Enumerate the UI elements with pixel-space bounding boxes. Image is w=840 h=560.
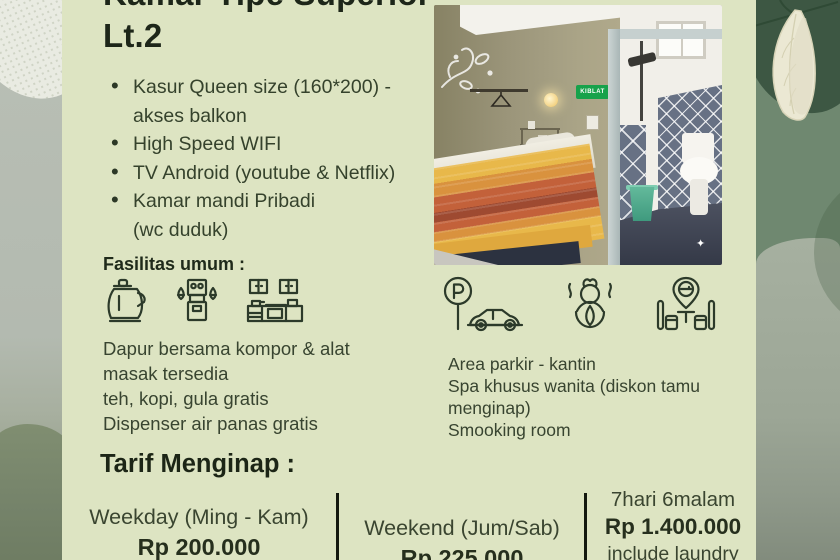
- amenity-description-line: menginap): [448, 397, 700, 419]
- price-label: 7hari 6malam: [590, 488, 756, 512]
- spa-icon: [557, 275, 623, 338]
- price-label: Weekend (Jum/Sab): [342, 516, 582, 541]
- amenity-description-line: Area parkir - kantin: [448, 353, 700, 375]
- feature-line: TV Android (youtube & Netflix): [133, 159, 440, 188]
- price-column-weekly: 7hari 6malam Rp 1.400.000 include laundr…: [590, 488, 756, 560]
- feature-line: akses balkon: [133, 102, 440, 131]
- smoking-room-icon: [656, 275, 716, 338]
- photo-toilet-base: [690, 179, 708, 215]
- lace-texture-blob: [0, 0, 62, 119]
- feature-line: Kamar mandi Pribadi: [133, 187, 440, 216]
- feature-item: Kamar mandi Pribadi (wc duduk): [110, 187, 440, 244]
- parking-icon: [436, 275, 524, 338]
- tarif-heading: Tarif Menginap :: [100, 450, 295, 479]
- price-column-weekday: Weekday (Ming - Kam) Rp 200.000: [66, 505, 332, 560]
- sparkle-icon: [696, 237, 705, 250]
- flyer: Kamar Tipe Superior Lt.2 Kasur Queen siz…: [0, 0, 840, 560]
- fasilitas-description-line: masak tersedia: [103, 361, 350, 386]
- photo-light-switch: [586, 115, 599, 130]
- flyer-title: Kamar Tipe Superior Lt.2: [103, 0, 431, 57]
- price-label: Weekday (Ming - Kam): [66, 505, 332, 530]
- kettle-icon: [98, 276, 152, 331]
- fasilitas-description-line: Dispenser air panas gratis: [103, 411, 350, 436]
- amenities-icon-row: [436, 275, 716, 338]
- fasilitas-description-line: Dapur bersama kompor & alat: [103, 336, 350, 361]
- feature-item: High Speed WIFI: [110, 130, 440, 159]
- price-value: Rp 225.000: [342, 545, 582, 560]
- price-divider: [584, 493, 587, 560]
- fasilitas-icon-row: [98, 276, 308, 331]
- kitchen-set-icon: [242, 276, 308, 331]
- amenity-description-line: Spa khusus wanita (diskon tamu: [448, 375, 700, 397]
- photo-shower-pipe: [640, 41, 643, 121]
- photo-door-frame: [608, 29, 620, 265]
- amenity-description-line: Smooking room: [448, 419, 700, 441]
- fasilitas-description-line: teh, kopi, gula gratis: [103, 386, 350, 411]
- price-divider: [336, 493, 339, 560]
- photo-bathroom-window: [656, 21, 706, 59]
- leaf-decoration: [756, 0, 840, 150]
- fasilitas-heading: Fasilitas umum :: [103, 254, 245, 275]
- room-photo: KIBLAT: [434, 5, 722, 265]
- fasilitas-description: Dapur bersama kompor & alat masak tersed…: [103, 336, 350, 436]
- amenities-description: Area parkir - kantin Spa khusus wanita (…: [448, 353, 700, 441]
- price-column-weekend: Weekend (Jum/Sab) Rp 225.000: [342, 516, 582, 560]
- title-line2: Lt.2: [103, 15, 431, 57]
- photo-clothes-hanger: [490, 91, 512, 109]
- photo-qibla-sign: KIBLAT: [576, 85, 609, 99]
- olive-wave-blob: [0, 424, 62, 560]
- feature-line: (wc duduk): [133, 216, 440, 245]
- feature-item: TV Android (youtube & Netflix): [110, 159, 440, 188]
- feature-list: Kasur Queen size (160*200) - akses balko…: [110, 73, 440, 244]
- left-decor-strip: [0, 0, 62, 560]
- feature-line: High Speed WIFI: [133, 130, 440, 159]
- feature-line: Kasur Queen size (160*200) -: [133, 73, 440, 102]
- title-line1: Kamar Tipe Superior: [103, 0, 431, 15]
- photo-wall-lamp: [544, 93, 558, 107]
- water-dispenser-icon: [174, 276, 220, 331]
- price-note: include laundry: [590, 543, 756, 560]
- price-value: Rp 200.000: [66, 534, 332, 560]
- price-value: Rp 1.400.000: [590, 514, 756, 540]
- right-decor-strip: [756, 0, 840, 560]
- photo-door-frame-top: [608, 29, 722, 39]
- feature-item: Kasur Queen size (160*200) - akses balko…: [110, 73, 440, 130]
